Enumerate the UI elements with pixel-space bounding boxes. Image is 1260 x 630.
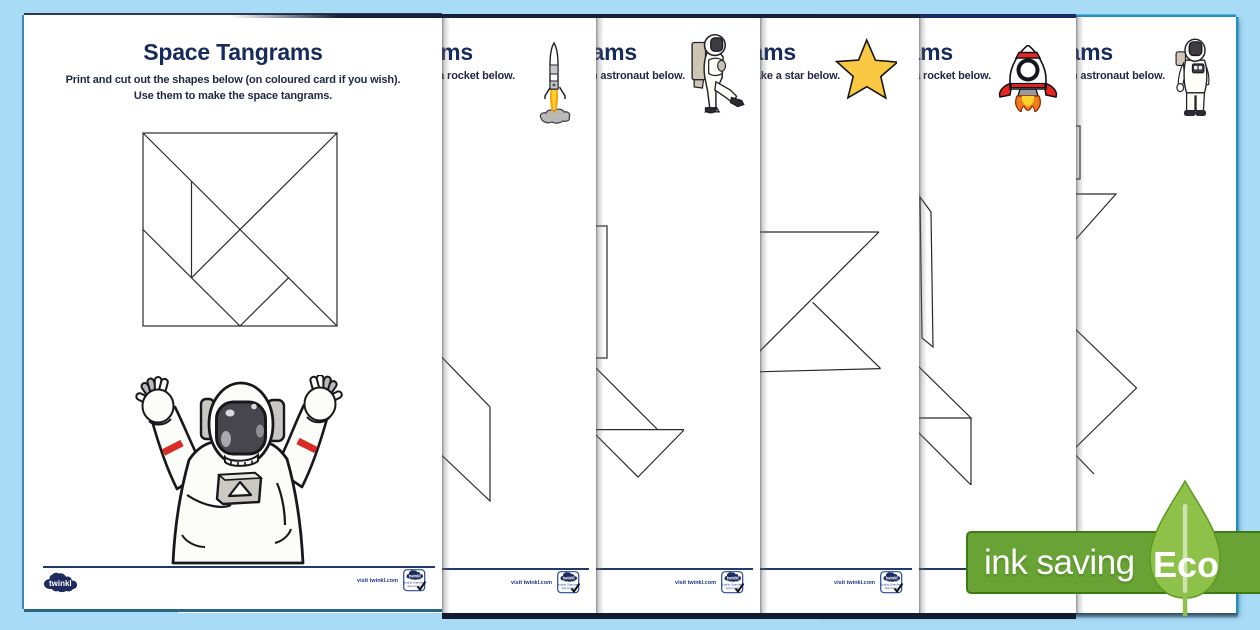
svg-text:twinkl: twinkl: [49, 579, 72, 588]
svg-text:Eco: Eco: [1153, 544, 1219, 585]
